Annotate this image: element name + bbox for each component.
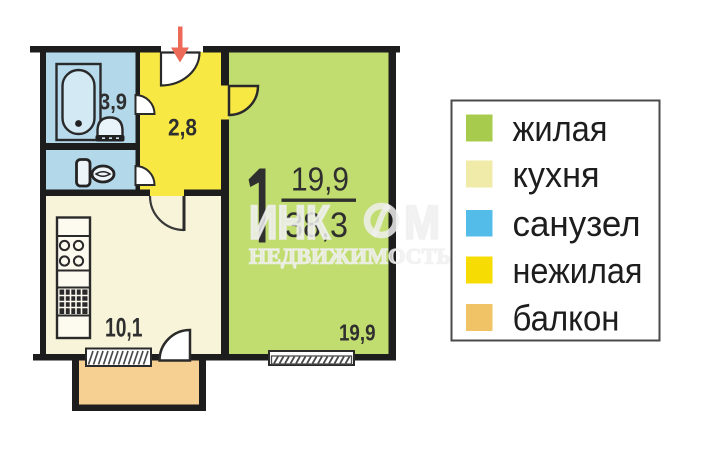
svg-text:жилая: жилая [513, 108, 608, 149]
svg-text:НЕДВИЖИМОСТЬ: НЕДВИЖИМОСТЬ [249, 244, 451, 269]
svg-text:М: М [404, 196, 440, 249]
svg-text:санузел: санузел [513, 203, 641, 244]
svg-text:19,9: 19,9 [291, 161, 349, 198]
svg-text:3,9: 3,9 [99, 89, 127, 115]
svg-text:2,8: 2,8 [168, 115, 197, 142]
svg-text:19,9: 19,9 [339, 320, 376, 346]
svg-text:10,1: 10,1 [105, 313, 143, 343]
svg-text:ИНК: ИНК [249, 196, 330, 249]
svg-text:нежилая: нежилая [513, 250, 643, 291]
svg-text:кухня: кухня [513, 154, 600, 195]
svg-text:балкон: балкон [513, 298, 620, 339]
